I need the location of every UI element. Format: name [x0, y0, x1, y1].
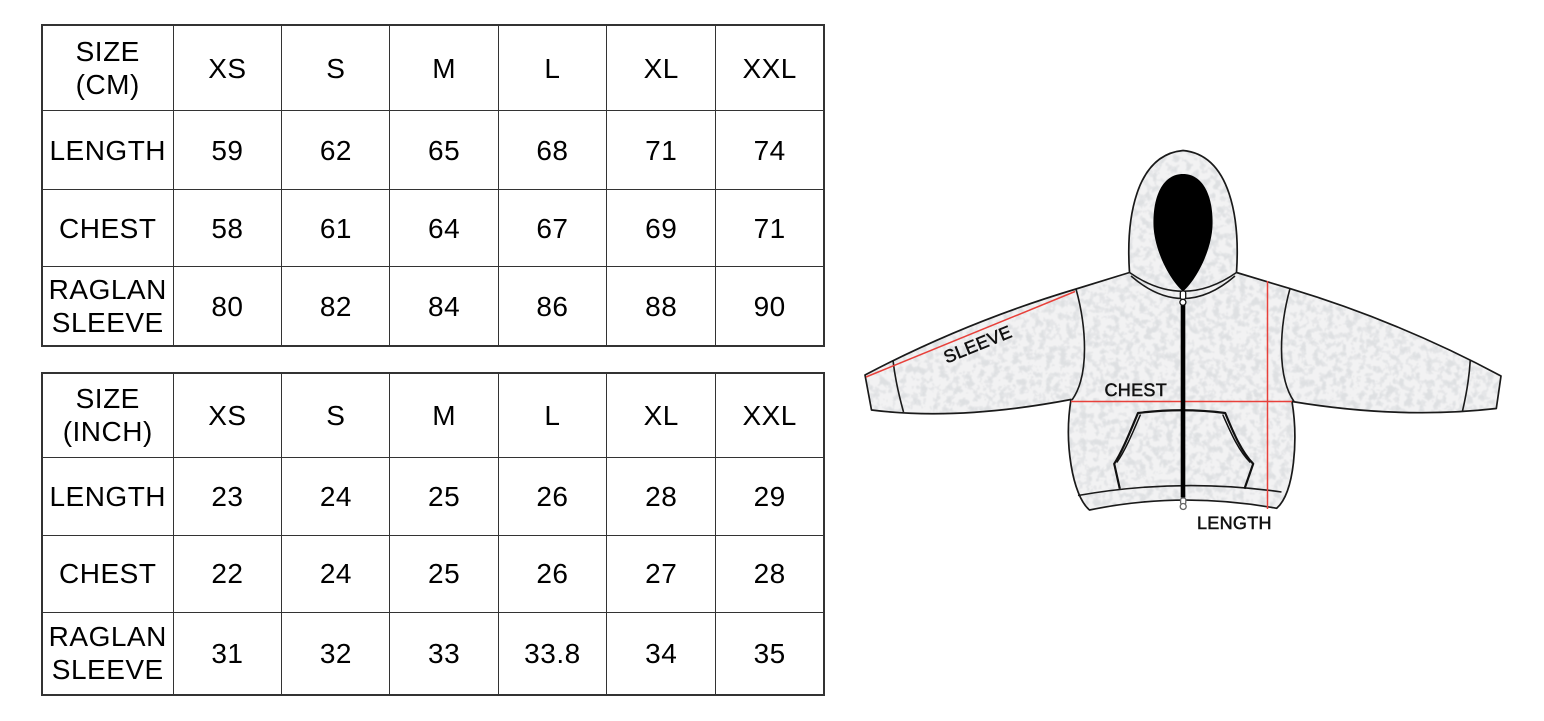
- svg-text:LENGTH: LENGTH: [1197, 513, 1272, 533]
- svg-text:CHEST: CHEST: [1105, 380, 1168, 400]
